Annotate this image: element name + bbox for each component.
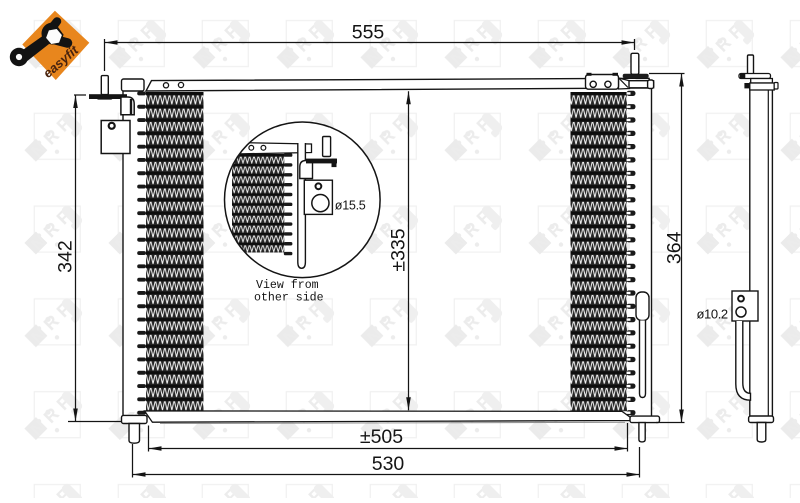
svg-text:342: 342 (55, 240, 77, 273)
svg-text:364: 364 (664, 231, 686, 264)
svg-text:530: 530 (372, 453, 405, 475)
svg-text:ø10.2: ø10.2 (697, 307, 728, 322)
svg-text:±335: ±335 (388, 228, 410, 271)
svg-text:555: 555 (352, 22, 385, 44)
svg-text:ø15.5: ø15.5 (335, 199, 366, 213)
svg-text:±505: ±505 (360, 426, 403, 448)
svg-text:other side: other side (254, 291, 324, 304)
svg-text:View from: View from (256, 279, 319, 292)
